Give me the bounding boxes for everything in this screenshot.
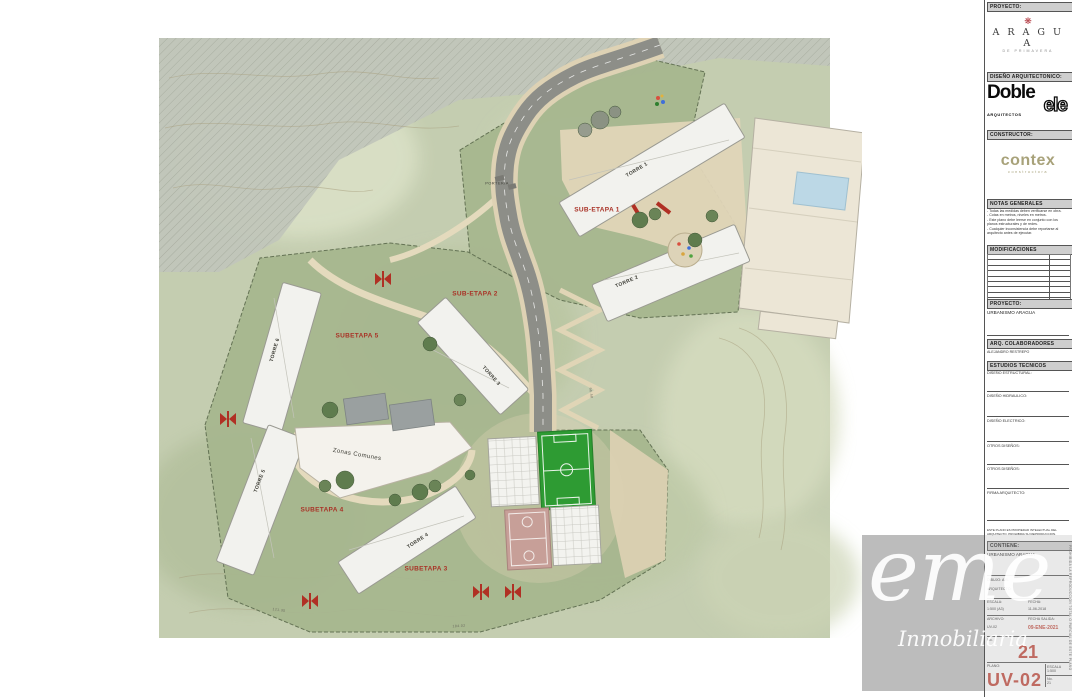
soccer-field <box>538 429 596 510</box>
section-marker-icon <box>505 586 521 598</box>
titleblock-header-colaboradores: ARQ. COLABORADORES <box>987 339 1072 349</box>
vertical-copyright-note: PROHIBIDA LA REPRODUCCION TOTAL O PARCIA… <box>1068 545 1072 690</box>
fecha-label: FECHA: <box>1028 600 1069 604</box>
note-line: - Este plano debe leerse en conjunto con… <box>987 218 1069 227</box>
study-row: DISEÑO HIDRAULICO: <box>987 394 1069 398</box>
sheet-number: 21 <box>987 642 1069 663</box>
study-row: OTROS DISEÑOS: <box>987 467 1069 471</box>
label-subetapa-3: SUBETAPA 3 <box>405 566 448 573</box>
contex-subtitle: constructora <box>987 170 1069 174</box>
study-row: OTROS DISEÑOS: <box>987 444 1069 448</box>
label-subetapa-2: SUB-ETAPA 2 <box>452 291 497 298</box>
archivo-value: UV-02 <box>987 625 1028 631</box>
dobleele-subtitle: ARQUITECTOS <box>987 112 1022 117</box>
dobleele-word-2: ele <box>1044 98 1067 113</box>
project-name: URBANISMO ARAGUA <box>987 310 1069 315</box>
study-row: DISEÑO ELECTRICO: <box>987 419 1069 423</box>
aragua-name: A R A G U A <box>987 27 1069 49</box>
study-row: DISEÑO ESTRUCTURAL: <box>987 371 1069 375</box>
titleblock-header-contiene: CONTIENE: <box>987 541 1072 551</box>
label-subetapa-5: SUBETAPA 5 <box>336 333 379 340</box>
dibujo-label: DIBUJO: <box>987 578 1001 582</box>
section-marker-icon <box>375 273 391 285</box>
section-marker-icon <box>220 413 236 425</box>
arquitecto-label: ARQUITECTO: <box>987 587 1069 591</box>
aragua-ornament-icon: ❋ <box>987 16 1069 27</box>
dobleele-logo: Doble ARQUITECTOS ele <box>987 84 1069 121</box>
note-line: - Cualquier inconsistencia debe reportar… <box>987 227 1069 236</box>
site-plan-drawing <box>159 38 862 638</box>
aragua-logo: ❋ A R A G U A DE PRIMAVERA <box>987 16 1069 53</box>
contex-name: contex <box>987 152 1069 170</box>
disclaimer-text: ESTE PLANO ES PROPIEDAD INTELECTUAL DEL … <box>987 529 1069 537</box>
scale-date-labels: ESCALA: FECHA: <box>987 600 1069 604</box>
section-marker-icon <box>302 595 318 607</box>
mini-value: 1:500 <box>1047 669 1056 673</box>
parking-lot-2 <box>551 505 602 565</box>
site-plan: TORRE 1 TORRE 2 TORRE 3 TORRE 4 TORRE 5 … <box>159 38 862 638</box>
titleblock-header-proyecto-top: PROYECTO: <box>987 2 1072 12</box>
section-marker-icon <box>473 586 489 598</box>
mini-label: No. <box>1047 677 1053 681</box>
label-porteria: PORTERIA <box>485 181 509 186</box>
aragua-tagline: DE PRIMAVERA <box>987 49 1069 53</box>
file-output-values: UV-02 09-ENE-2021 <box>987 625 1069 631</box>
modifications-table <box>987 254 1071 304</box>
neighbor-building <box>739 118 862 339</box>
titleblock-header-constructor: CONSTRUCTOR: <box>987 130 1072 140</box>
salida-label: FECHA SALIDA: <box>1028 617 1069 621</box>
file-output-labels: ARCHIVO: FECHA SALIDA: <box>987 617 1069 621</box>
dibujo-row: DIBUJO: A.B. <box>987 578 1069 582</box>
parking-lot-1 <box>488 436 539 506</box>
dobleele-word-1: Doble <box>987 82 1035 103</box>
mini-label: ESCALA <box>1047 665 1061 669</box>
escala-label: ESCALA: <box>987 600 1028 604</box>
label-subetapa-4: SUBETAPA 4 <box>301 507 344 514</box>
boundary-dimension: 184.02 <box>452 624 465 629</box>
sheet-code: UV-02 <box>987 670 1043 691</box>
watermark-background <box>862 535 985 691</box>
mini-value: 21 <box>1047 681 1051 685</box>
archivo-label: ARCHIVO: <box>987 617 1028 621</box>
salida-value: 09-ENE-2021 <box>1028 625 1069 631</box>
scale-date-values: 1:500 (A3) 11-06-2018 <box>987 607 1069 611</box>
collaborator-name: ALEJANDRO RESTREPO <box>987 350 1069 354</box>
contex-logo: contex constructora <box>987 152 1069 174</box>
basketball-court <box>505 508 552 570</box>
label-subetapa-1: SUB-ETAPA 1 <box>574 207 619 214</box>
fecha-value: 11-06-2018 <box>1028 607 1069 611</box>
titleblock-header-estudios: ESTUDIOS TECNICOS <box>987 361 1072 371</box>
study-row: FIRMA ARQUITECTO: <box>987 491 1069 495</box>
contains-value: URBANISMO ARAGUA <box>987 552 1069 557</box>
escala-value: 1:500 (A3) <box>987 607 1028 611</box>
titleblock-header-diseno: DISEÑO ARQUITECTONICO: <box>987 72 1072 82</box>
dibujo-value: A.B. <box>1002 578 1009 582</box>
title-block: PROYECTO: ❋ A R A G U A DE PRIMAVERA DIS… <box>984 0 1072 697</box>
titleblock-header-notas: NOTAS GENERALES <box>987 199 1072 209</box>
general-notes: - Todas las medidas deben verificarse en… <box>987 209 1069 236</box>
titleblock-header-proyecto: PROYECTO: <box>987 299 1072 309</box>
